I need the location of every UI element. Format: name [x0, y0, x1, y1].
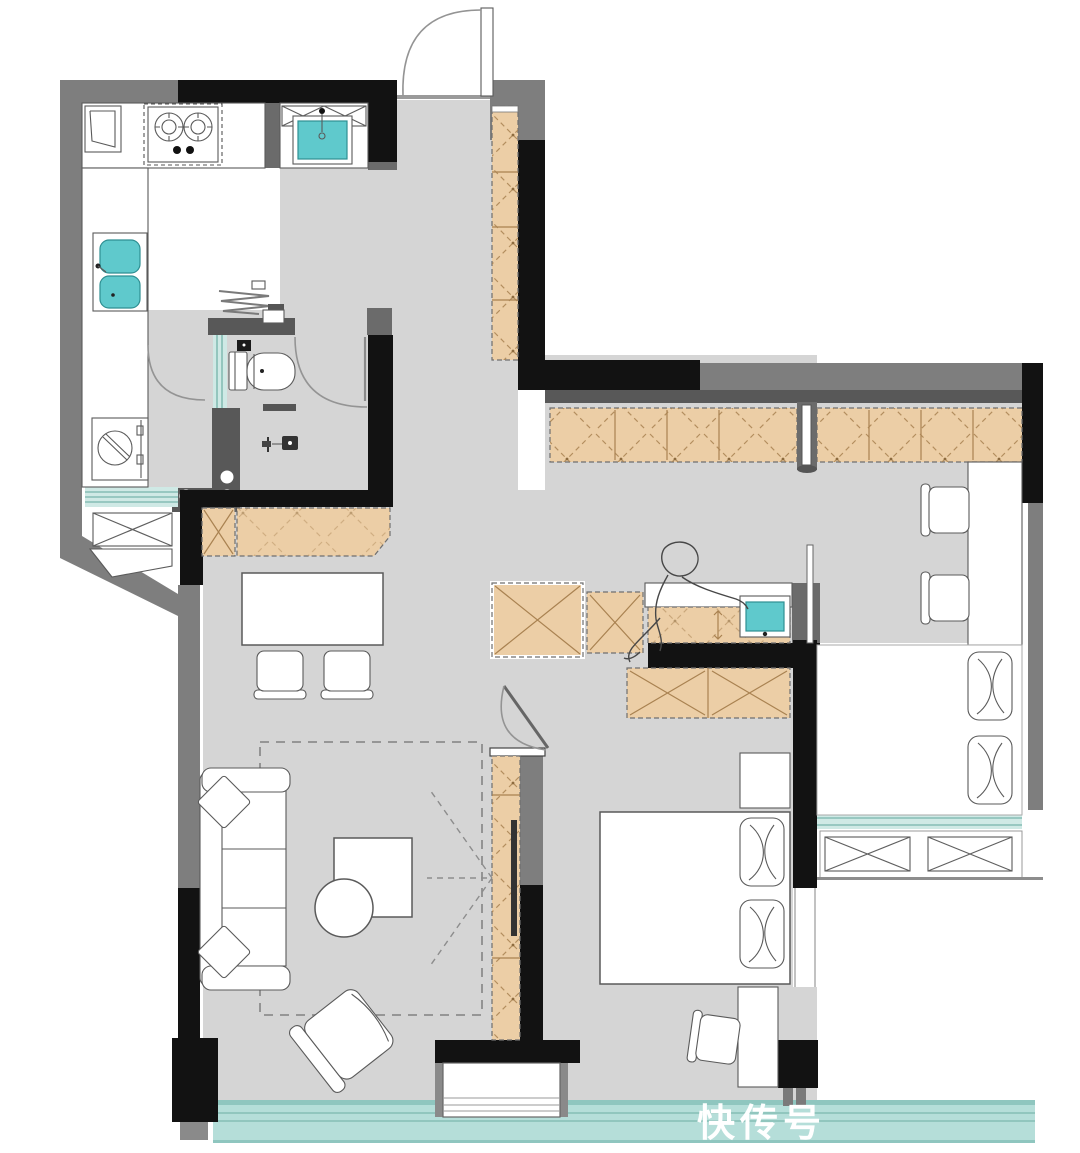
- study-chair: [921, 572, 969, 624]
- kitchen-window: [85, 106, 121, 152]
- gas-stove: [144, 104, 222, 165]
- bedroom-wardrobe: [627, 668, 790, 718]
- vanity-basin: [746, 602, 784, 631]
- dining-chair: [254, 651, 306, 699]
- entry-door-leaf: [481, 8, 493, 96]
- balcony-threshold: [443, 1063, 560, 1117]
- bedroom-window-opening: [793, 888, 817, 987]
- floor-plan-canvas: 快传号: [0, 0, 1080, 1153]
- sofa: [197, 768, 290, 990]
- bed-pillow: [740, 818, 784, 886]
- tall-hall-cabinet: [492, 106, 518, 360]
- daybed-cushion: [968, 736, 1012, 804]
- vanity-mirror-panel: [807, 545, 813, 643]
- nightstand: [740, 753, 790, 808]
- kitchen-double-sink: [93, 233, 147, 311]
- bedroom-desk: [738, 987, 778, 1087]
- dining-chair: [321, 651, 373, 699]
- junction-cabinet-small: [587, 592, 643, 653]
- study-desk: [968, 462, 1022, 645]
- study-window: [817, 815, 1022, 829]
- tv-panel: [511, 820, 517, 936]
- balcony-window-band: [213, 1100, 1035, 1143]
- entry-wash-basin: [280, 103, 368, 168]
- corridor-wardrobe-left: [550, 408, 797, 462]
- study-chair: [921, 484, 969, 536]
- corridor-wardrobe-right: [817, 408, 1022, 462]
- junction-cabinet-large: [492, 583, 583, 657]
- corridor-divider-post: [797, 402, 817, 473]
- dining-sideboard: [202, 508, 390, 556]
- coffee-table-round: [315, 879, 373, 937]
- watermark-text: 快传号: [697, 1104, 897, 1146]
- entry-door-arc: [403, 10, 481, 96]
- towel-radiator: [219, 281, 270, 314]
- dining-table: [242, 573, 383, 645]
- bedroom-chair: [687, 1010, 742, 1068]
- bathroom-glass-partition: [213, 335, 227, 408]
- floor-plan-drawing: [0, 0, 1080, 1153]
- bathroom-mirror: [263, 404, 296, 411]
- study-window-sill: [817, 831, 1043, 880]
- washing-machine: [92, 418, 148, 480]
- daybed-cushion: [968, 652, 1012, 720]
- bed-pillow: [740, 900, 784, 968]
- entry-door: [403, 8, 493, 96]
